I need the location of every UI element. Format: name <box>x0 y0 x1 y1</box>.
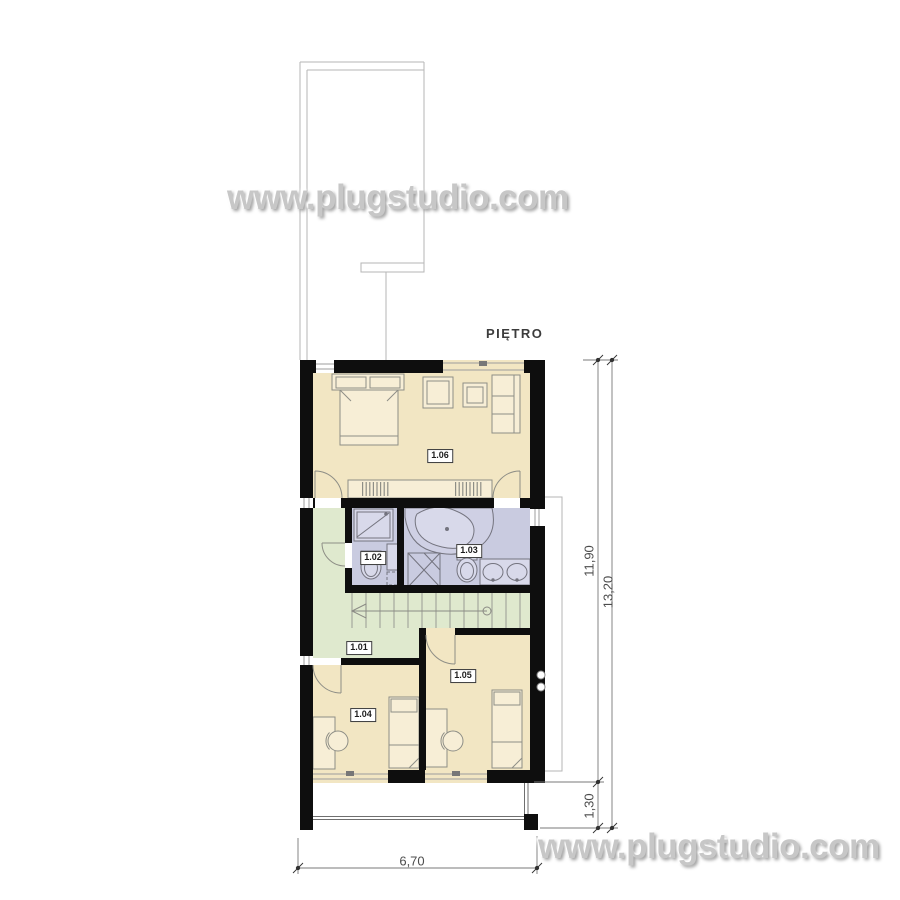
pillow <box>370 377 400 388</box>
balcony-railing <box>313 783 528 820</box>
roof-outline-right <box>545 497 562 771</box>
room-label-1-02: 1.02 <box>360 551 386 565</box>
watermark-bottom: www.plugstudio.com <box>538 827 880 867</box>
dim-label-width: 6,70 <box>399 854 424 869</box>
dim-label-balcony-depth: 1,30 <box>582 793 597 818</box>
room-label-1-03: 1.03 <box>456 544 482 558</box>
room-label-1-01: 1.01 <box>346 641 372 655</box>
room-label-1-04: 1.04 <box>350 708 376 722</box>
watermark-top: www.plugstudio.com <box>227 178 569 218</box>
dim-label-height-total: 13,20 <box>601 576 616 609</box>
floor-title: PIĘTRO <box>486 326 543 341</box>
chair <box>328 731 348 751</box>
chair <box>443 731 463 751</box>
pillow <box>336 377 366 388</box>
room-label-1-05: 1.05 <box>450 669 476 683</box>
room-label-1-06: 1.06 <box>427 449 453 463</box>
sofa <box>492 375 520 433</box>
dim-label-height-inner: 11,90 <box>582 545 597 577</box>
floor-plan-page: www.plugstudio.com www.plugstudio.com PI… <box>0 0 900 900</box>
vanity-double-sink <box>480 559 530 585</box>
